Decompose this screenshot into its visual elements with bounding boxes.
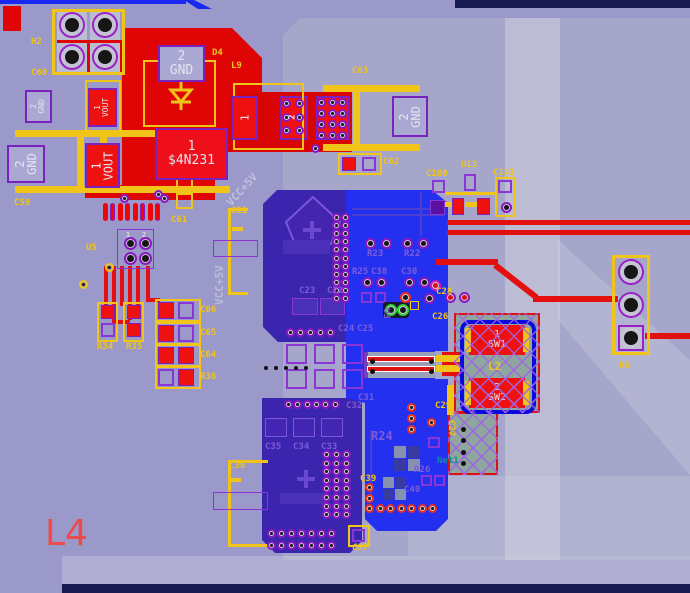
c100-pad-red2[interactable] [477,198,490,215]
designator-c37[interactable]: C37 [352,543,368,553]
c60-pad-gnd[interactable]: 2 GND [25,90,52,123]
via-signal[interactable] [400,292,411,303]
c30-pad[interactable] [404,277,415,288]
r23-pad[interactable] [381,238,392,249]
red-trace-h3b[interactable] [533,296,618,302]
c61-pad[interactable] [125,203,130,221]
c33-pad[interactable] [321,418,343,437]
via[interactable] [295,126,304,135]
via[interactable] [418,504,427,513]
gnd-stitch-trace[interactable] [323,144,420,151]
c40-pad[interactable] [383,477,394,488]
designator-c62[interactable]: C62 [383,157,399,167]
designator-c63[interactable]: C63 [352,66,368,76]
c66-pad[interactable] [158,302,174,319]
red-trace-h1[interactable] [447,220,690,225]
c62-pad-1[interactable] [342,157,356,171]
c65-pad[interactable] [158,325,174,342]
h2-pad-2[interactable] [94,14,116,36]
l2-pad-sw2[interactable]: 2SW2 [469,378,525,408]
c62-pad-2[interactable] [362,157,376,171]
designator-c27[interactable]: C27 [446,420,456,436]
r34-pad[interactable] [101,305,115,319]
c63-pad-gnd[interactable]: 2GND [392,96,428,137]
l2-stub[interactable] [436,355,462,362]
stitch-dot [284,366,288,370]
c100-pad-top[interactable] [432,180,445,193]
c61-pad[interactable] [155,203,160,221]
r36-pad[interactable] [158,369,174,386]
l2-pad-metal [465,328,471,352]
bundle-dot [370,369,375,374]
c30-pad[interactable] [419,277,430,288]
designator-c31[interactable]: C31 [358,393,374,403]
designator-c34[interactable]: C34 [293,442,309,452]
c61-pad[interactable] [133,203,138,221]
designator-r34[interactable]: R34 [97,342,113,352]
c36-outline [228,544,268,547]
via[interactable] [311,144,320,153]
plus-mark-icon [297,470,315,488]
via[interactable] [397,504,406,513]
smd-pad-yellow[interactable] [410,301,419,310]
via[interactable] [296,328,305,337]
via[interactable] [297,529,306,538]
smd-pad[interactable] [342,344,363,364]
c100-pad-bottom[interactable] [430,200,445,215]
keepout-dot [461,427,466,432]
via[interactable] [407,414,416,423]
l2-stub[interactable] [436,365,462,372]
u13-body[interactable] [464,174,476,191]
c141-via[interactable] [501,202,512,213]
designator-l2[interactable]: L2 [488,360,501,373]
designator-u5[interactable]: U5 [86,243,97,253]
via[interactable] [312,400,321,409]
l2-pad-metal [465,381,471,405]
c23-pad[interactable] [292,298,318,315]
designator-u13[interactable]: U13 [461,160,477,170]
stitch-dot [294,366,298,370]
trace[interactable] [120,266,124,306]
r24-pad[interactable] [394,459,406,471]
gnd-bus-trace[interactable] [77,136,84,192]
via[interactable] [286,328,295,337]
designator-u3[interactable]: U3 [381,308,391,319]
r35-pad[interactable] [127,305,141,319]
designator-h6[interactable]: H6 [619,361,630,371]
d4-pad-gnd[interactable]: 2GND [158,45,205,82]
r35-pad[interactable] [127,323,141,337]
designator-r36[interactable]: R36 [200,372,216,382]
designator-c35[interactable]: C35 [265,442,281,452]
u5-pin2-num: 2 [142,231,146,239]
r24-pad[interactable] [408,446,420,458]
designator-r23[interactable]: R23 [367,249,383,259]
r34-pad[interactable] [101,323,115,337]
diode-symbol-icon [166,82,196,112]
c21-body[interactable] [213,240,258,257]
c61-pad[interactable] [110,203,115,221]
via[interactable] [407,425,416,434]
designator-c30[interactable]: C30 [401,267,417,277]
designator-c33[interactable]: C33 [321,442,337,452]
via[interactable] [317,98,326,107]
c28-pad[interactable] [459,292,470,303]
via[interactable] [342,450,351,459]
smd-pad[interactable] [286,344,307,364]
via[interactable] [342,493,351,502]
c61-pad[interactable] [140,203,145,221]
designator-c28[interactable]: C28 [436,287,452,297]
via[interactable] [328,131,337,140]
bundle-dot [429,369,434,374]
r22-pad[interactable] [402,238,413,249]
c38-pad[interactable] [376,277,387,288]
via[interactable] [306,328,315,337]
via[interactable] [267,541,276,550]
smd-pad[interactable] [342,369,363,389]
designator-c39[interactable]: C39 [360,474,376,484]
via[interactable] [160,194,169,203]
via[interactable] [332,493,341,502]
via[interactable] [284,400,293,409]
red-trace-h3a[interactable] [436,259,498,265]
stitch-dot [274,366,278,370]
designator-l9[interactable]: L9 [231,61,242,71]
cap-pad-bar [280,493,327,504]
via[interactable] [428,504,437,513]
c65-pad[interactable] [178,325,194,342]
designator-c29[interactable]: C29 [435,401,451,411]
via[interactable] [365,504,374,513]
h2-pad-1[interactable] [61,14,83,36]
r36-pad[interactable] [178,369,194,386]
via[interactable] [322,493,331,502]
via[interactable] [307,541,316,550]
red-trace-h2[interactable] [447,230,690,235]
keepout-dot [461,461,466,466]
designator-c60[interactable]: C60 [31,68,47,78]
designator-c100[interactable]: C100 [426,169,448,179]
via-yellow[interactable] [79,280,88,289]
u5-pad[interactable] [124,252,137,265]
l2-pad-metal [523,328,529,352]
c36-mark [230,478,241,482]
via[interactable] [327,541,336,550]
d4-pad-anode[interactable]: 1$4N231 [155,128,228,180]
keepout-dot [461,438,466,443]
designator-r26[interactable]: R26 [414,465,430,475]
designator-h2[interactable]: H2 [31,37,42,47]
designator-c24[interactable]: C24 [338,324,354,334]
c64-pad[interactable] [158,347,174,364]
net-label-net1: Net1 [437,456,459,466]
smd-pad[interactable] [428,437,440,448]
l2-pad-sw1[interactable]: 1SW1 [469,325,525,355]
via[interactable] [303,400,312,409]
h6-pad-2[interactable] [620,294,642,316]
designator-c141[interactable]: C141 [493,168,515,178]
bundle-dot [429,359,434,364]
smd-pad[interactable] [314,369,335,389]
l2-pad-metal [523,381,529,405]
via[interactable] [328,109,337,118]
u5-pin1-num: 1 [126,231,130,239]
c40-pad[interactable] [383,489,394,500]
plus-mark-icon [303,221,321,239]
c35-pad[interactable] [265,418,287,437]
h2-pad-3[interactable] [61,46,83,68]
via[interactable] [282,126,291,135]
designator-c61[interactable]: C61 [171,215,187,225]
u13-yellow-link [445,192,497,195]
designator-c22[interactable]: C22 [327,286,343,296]
designator-c36[interactable]: C36 [229,461,245,471]
pcb-canvas: H2 C60 2 GND 1 VOUT C59 2GND 1VOUT D4 2G… [0,0,690,593]
via-yellow[interactable] [105,263,114,272]
r25-pad[interactable] [362,277,373,288]
designator-c38[interactable]: C38 [371,267,387,277]
c61-pad[interactable] [118,203,123,221]
gnd-stitch-trace[interactable] [353,92,360,144]
gnd-bus-trace[interactable] [15,186,230,193]
c64-pad[interactable] [178,347,194,364]
trace[interactable] [104,266,108,306]
via[interactable] [287,529,296,538]
c59-pad-vout[interactable]: 1VOUT [85,143,120,188]
c34-pad[interactable] [293,418,315,437]
via[interactable] [317,541,326,550]
designator-d4[interactable]: D4 [212,48,223,58]
designator-r22[interactable]: R22 [404,249,420,259]
via[interactable] [287,541,296,550]
bundle-trace-red[interactable] [367,366,435,372]
via[interactable] [328,98,337,107]
designator-l4[interactable]: L4 [45,513,88,554]
designator-r24[interactable]: R24 [371,429,393,443]
net-text-vcc-vertical: VCC+5V [213,265,226,305]
designator-r35[interactable]: R35 [126,342,142,352]
via[interactable] [376,504,385,513]
cap-pad-bar [283,240,330,254]
via[interactable] [317,120,326,129]
u5-pad[interactable] [139,252,152,265]
h2-pad-4[interactable] [94,46,116,68]
via[interactable] [297,541,306,550]
bundle-dot [370,359,375,364]
designator-c40[interactable]: C40 [404,485,420,495]
via[interactable] [267,529,276,538]
c141-pad-top[interactable] [498,180,512,193]
via[interactable] [365,494,374,503]
c61-pad[interactable] [148,203,153,221]
trace[interactable] [136,266,140,306]
c37-pad[interactable] [352,529,365,542]
r26-pad[interactable] [434,475,445,486]
c61-pad[interactable] [103,203,108,221]
via[interactable] [365,483,374,492]
r23-pad[interactable] [365,238,376,249]
designator-c26[interactable]: C26 [432,312,448,322]
c21-mark [232,227,243,231]
via[interactable] [317,529,326,538]
designator-c59[interactable]: C59 [14,198,30,208]
c66-pad[interactable] [178,302,194,319]
c60-pad-vout[interactable]: 1 VOUT [88,88,117,127]
via[interactable] [295,99,304,108]
d4-lower-pad[interactable] [176,193,193,209]
l9-pad-1[interactable]: 1 [232,96,258,140]
keepout-dot [461,450,466,455]
via-signal[interactable] [427,418,436,427]
smd-pad[interactable] [286,369,307,389]
via[interactable] [331,400,340,409]
c100-pad-red1[interactable] [452,198,464,215]
gnd-stitch-trace[interactable] [323,85,420,92]
via[interactable] [327,529,336,538]
c21-outline [228,292,248,295]
via[interactable] [326,328,335,337]
designator-c66[interactable]: C66 [200,305,216,315]
smd-pad[interactable] [314,344,335,364]
h6-pad-1[interactable] [620,261,642,283]
via[interactable] [317,109,326,118]
via-green[interactable] [397,304,409,316]
via[interactable] [407,403,416,412]
via[interactable] [277,541,286,550]
stitch-dot [264,366,268,370]
c59-pad-gnd[interactable]: 2GND [7,145,45,183]
via[interactable] [307,529,316,538]
designator-r25[interactable]: R25 [352,267,368,277]
l9-pad2-num: 2 [288,114,298,119]
via[interactable] [424,293,435,304]
via[interactable] [277,529,286,538]
bundle-trace-red[interactable] [367,356,435,362]
r26-pad[interactable] [421,475,432,486]
designator-c64[interactable]: C64 [200,350,216,360]
smd-pad[interactable] [361,292,372,303]
designator-c25[interactable]: C25 [357,324,373,334]
c36-body[interactable] [213,492,268,510]
via[interactable] [120,194,129,203]
designator-c65[interactable]: C65 [200,328,216,338]
r22-pad[interactable] [418,238,429,249]
designator-c23[interactable]: C23 [299,286,315,296]
via[interactable] [282,99,291,108]
r24-pad[interactable] [394,446,406,458]
red-trace-h4[interactable] [645,333,690,339]
stitch-dot [304,366,308,370]
via[interactable] [317,131,326,140]
h6-pad-3[interactable] [620,327,642,349]
via[interactable] [316,328,325,337]
via[interactable] [328,120,337,129]
trace[interactable] [146,266,150,302]
